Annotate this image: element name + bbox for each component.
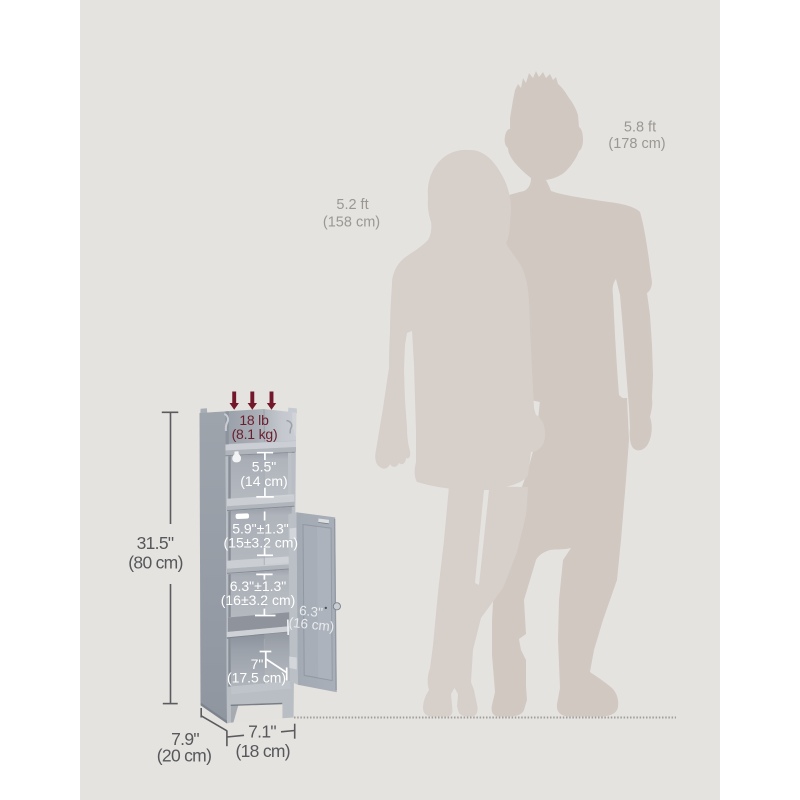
- svg-text:7.1": 7.1": [248, 722, 276, 742]
- svg-text:(14 cm): (14 cm): [240, 473, 287, 489]
- svg-text:(178 cm): (178 cm): [608, 136, 665, 152]
- svg-text:5.8 ft: 5.8 ft: [624, 120, 656, 136]
- svg-text:(80 cm): (80 cm): [128, 553, 182, 573]
- svg-text:(18 cm): (18 cm): [235, 741, 289, 761]
- svg-text:(15±3.2 cm): (15±3.2 cm): [224, 535, 299, 551]
- svg-text:(158 cm): (158 cm): [323, 215, 380, 231]
- svg-text:(20 cm): (20 cm): [157, 746, 211, 766]
- svg-text:5.2 ft: 5.2 ft: [336, 197, 368, 213]
- svg-text:(16±3.2 cm): (16±3.2 cm): [221, 592, 296, 608]
- svg-text:(8.1 kg): (8.1 kg): [232, 426, 278, 442]
- svg-text:31.5": 31.5": [137, 533, 174, 553]
- svg-text:(17.5 cm): (17.5 cm): [227, 670, 286, 686]
